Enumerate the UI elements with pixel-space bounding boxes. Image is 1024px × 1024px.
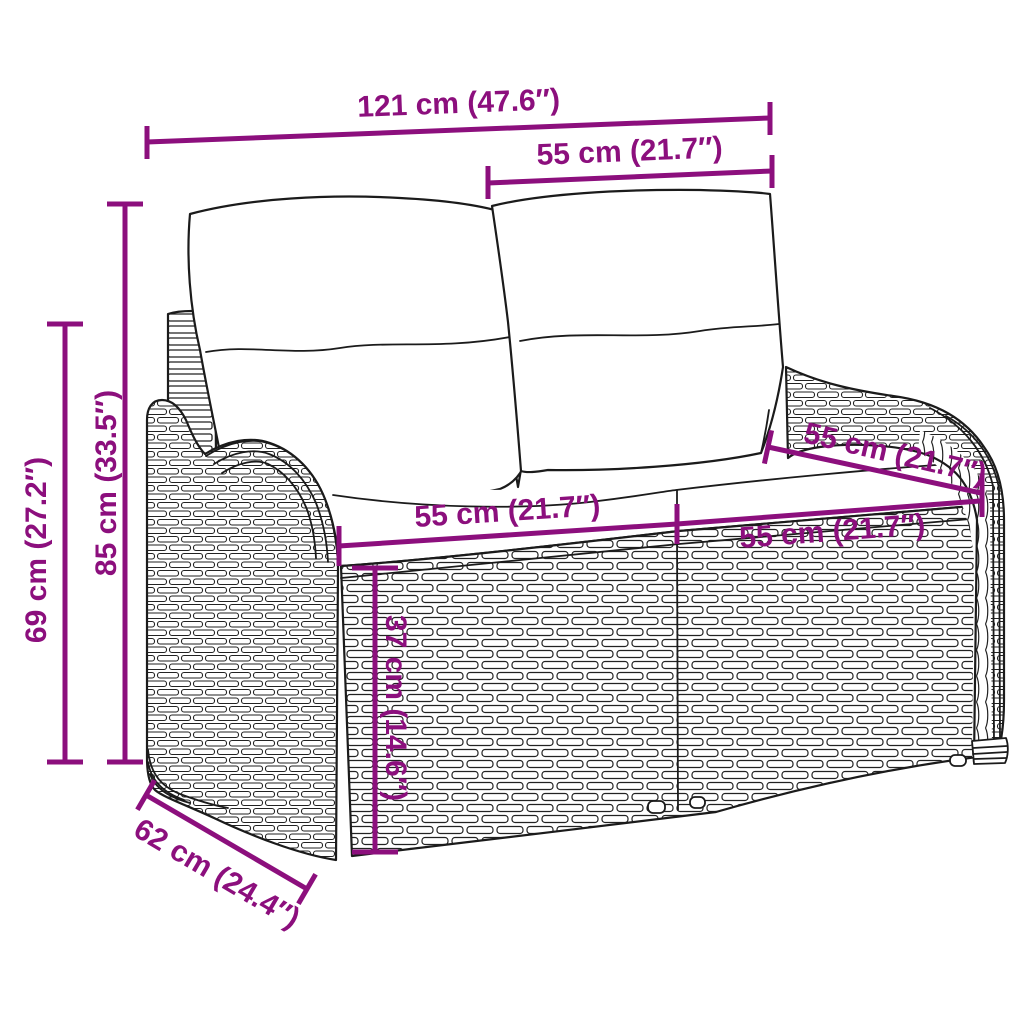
dim-arm-height-label: 69 cm (27.2″)	[20, 457, 53, 643]
dim-arm-height: 69 cm (27.2″)	[20, 324, 83, 762]
dim-seat-height-label: 37 cm (14.6″)	[379, 615, 412, 801]
diagram-canvas: 121 cm (47.6″) 55 cm (21.7″) 85 cm (33.5…	[0, 0, 1024, 1024]
product-dimension-diagram: 121 cm (47.6″) 55 cm (21.7″) 85 cm (33.5…	[0, 0, 1024, 1024]
dim-back-height-label: 85 cm (33.5″)	[90, 390, 123, 576]
dim-back-height: 85 cm (33.5″)	[90, 204, 143, 762]
right-foot-bands	[972, 738, 1008, 764]
dim-total-width-label: 121 cm (47.6″)	[357, 83, 561, 124]
dim-back-section-width: 55 cm (21.7″)	[488, 131, 772, 199]
back-cushion-right	[492, 190, 783, 472]
dim-back-section-width-label: 55 cm (21.7″)	[536, 131, 723, 172]
